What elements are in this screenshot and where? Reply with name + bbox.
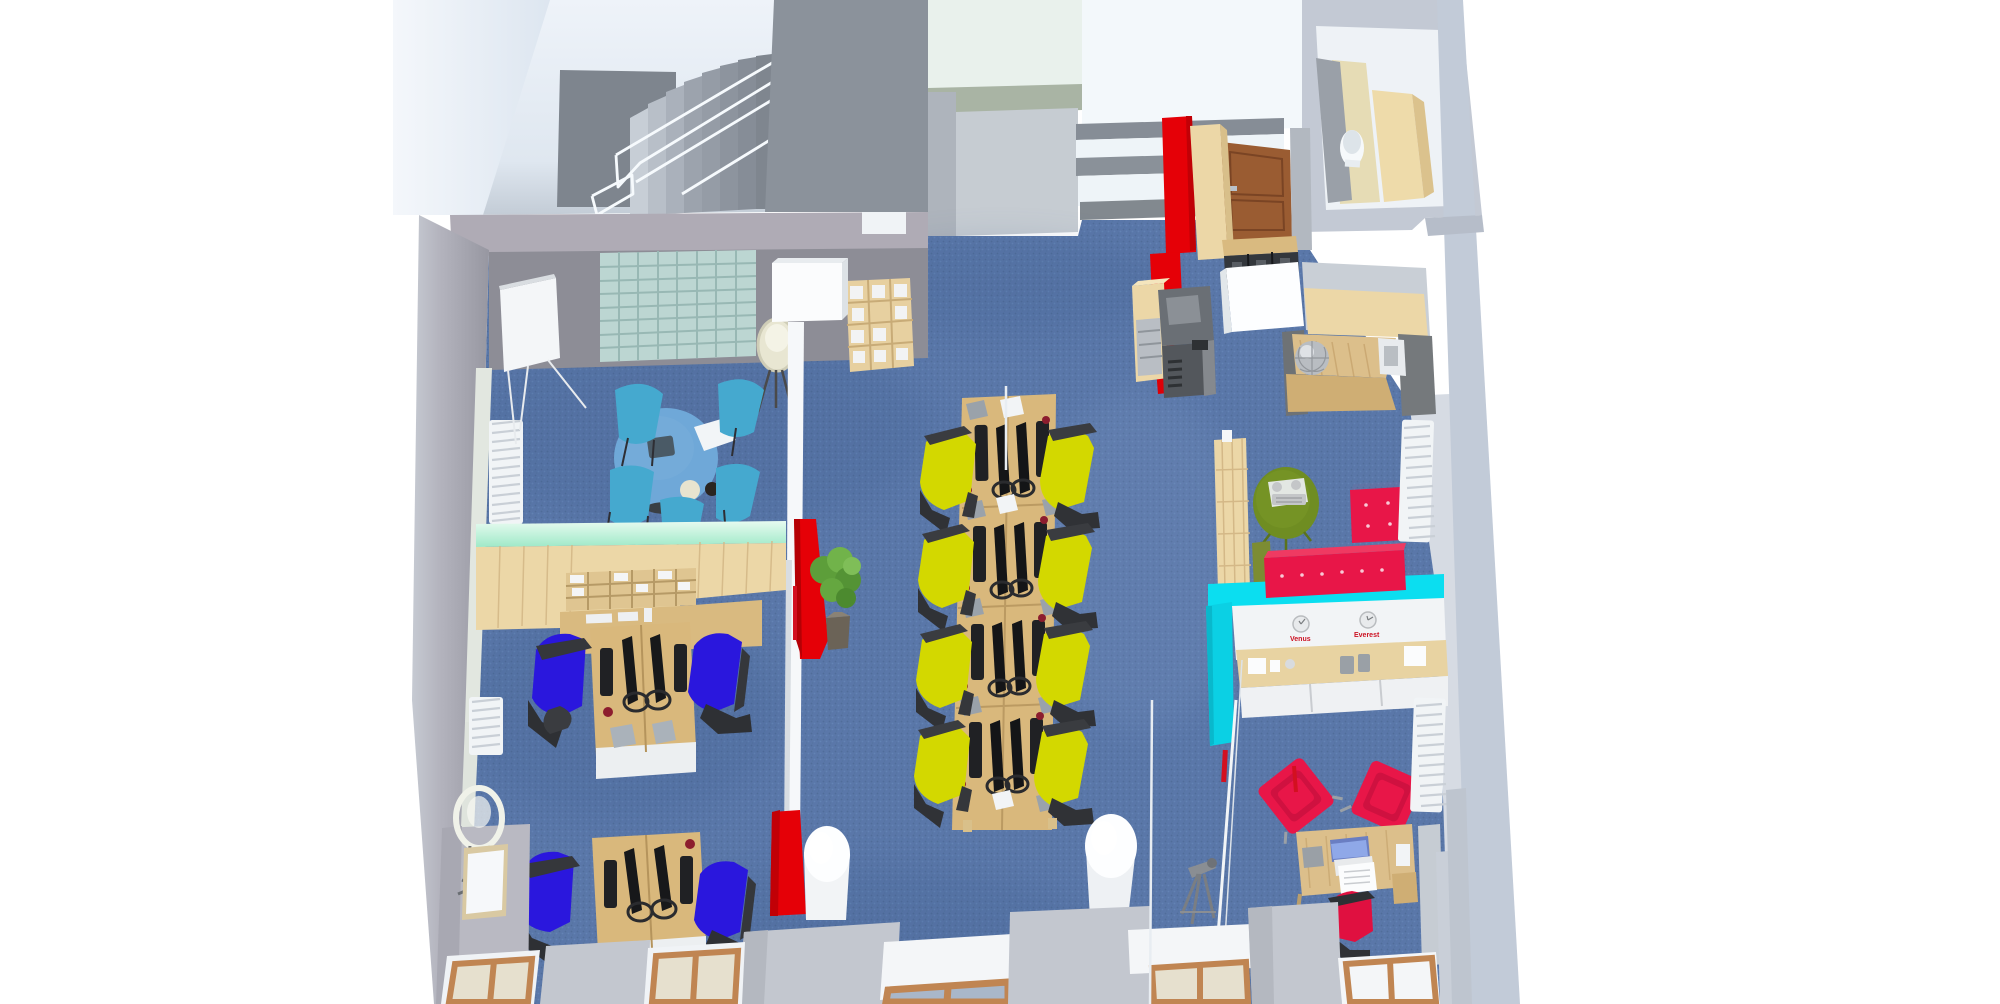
svg-text:Everest: Everest [1354,632,1380,639]
svg-text:Venus: Venus [1290,636,1311,643]
